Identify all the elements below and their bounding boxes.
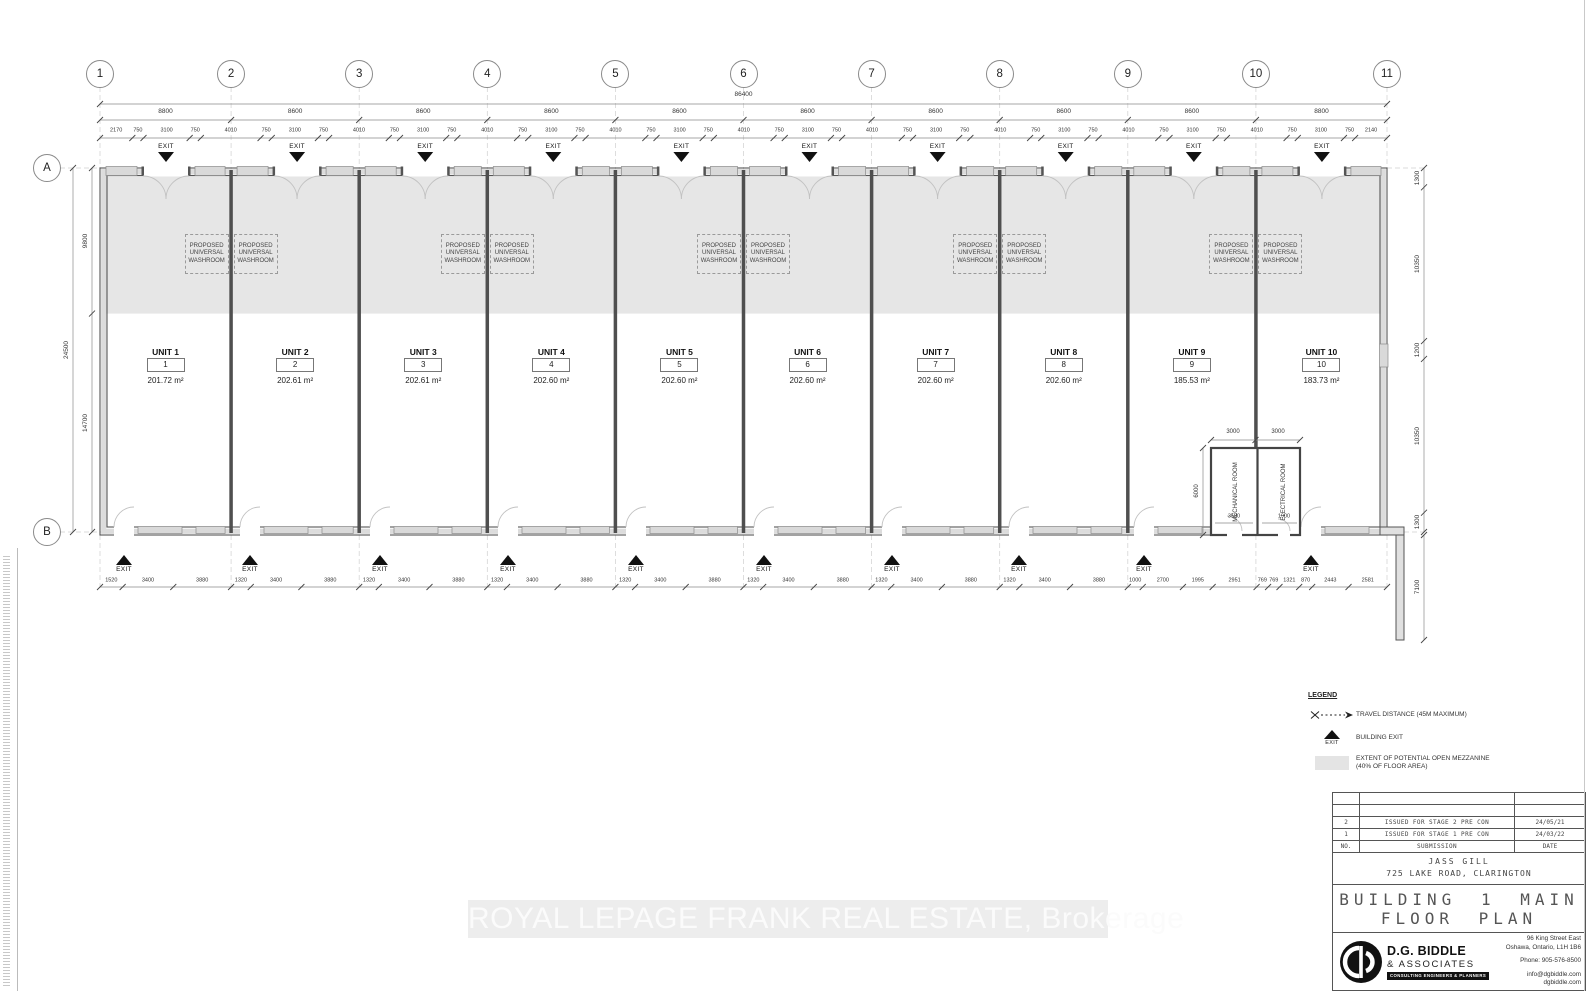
plan-geometry [188,167,191,176]
exit-arrow-icon [500,555,516,565]
sub-dim: 3100 [1186,128,1198,134]
bottom-dim: 1320 [491,578,503,584]
revision-row: 1 ISSUED FOR STAGE 1 PRE CON 24/03/22 [1333,829,1585,841]
window [138,527,182,534]
exit-arrow-icon [242,555,258,565]
right-dim: 1200 [1415,343,1422,357]
window [878,167,909,176]
window [1033,527,1077,534]
window [580,527,609,534]
proposed-washroom: PROPOSED UNIVERSAL WASHROOM [1209,234,1253,274]
sheet-margin-microtext [3,556,10,988]
window [1380,344,1389,367]
right-dim: 10350 [1415,255,1422,273]
bottom-dim: 3400 [654,578,666,584]
unit-name: UNIT 9 [1178,348,1205,357]
travel-distance-icon [1308,709,1356,721]
window [1351,167,1381,176]
sub-dim: 3100 [289,128,301,134]
unit-area: 201.72 m² [148,377,184,385]
plan-geometry [960,167,963,176]
firm-identity: D.G. BIDDLE & ASSOCIATES CONSULTING ENGI… [1339,940,1489,984]
bottom-dim: 2700 [1157,578,1169,584]
sub-dim: 750 [575,128,584,134]
plan-geometry [882,507,902,527]
span-dim: 8600 [1185,109,1199,116]
firm-web: dgbiddle.com [1489,979,1581,988]
span-dim: 8600 [672,109,686,116]
exit-label: EXIT [1058,144,1074,151]
unit-name: UNIT 6 [794,348,821,357]
legend-item-mezzanine: EXTENT OF POTENTIAL OPEN MEZZANINE (40% … [1308,755,1518,772]
window [1134,167,1165,176]
bottom-dim: 1320 [235,578,247,584]
firm-tagline: CONSULTING ENGINEERS & PLANNERS [1387,972,1489,980]
exit-label: EXIT [1303,567,1319,574]
project-info: JASS GILL 725 LAKE ROAD, CLARINGTON [1333,853,1585,885]
door-opening [1171,166,1217,177]
sub-dim: 4010 [994,128,1006,134]
legend-label: EXTENT OF POTENTIAL OPEN MEZZANINE (40% … [1356,755,1491,772]
window [964,527,994,534]
exit-label: EXIT [116,567,132,574]
plan-geometry [754,507,774,527]
bottom-dim: 1320 [1003,578,1015,584]
room-dim: 3000 [1271,429,1284,435]
revision-row: 2 ISSUED FOR STAGE 2 PRE CON 24/05/21 [1333,817,1585,829]
bottom-dim: 1320 [619,578,631,584]
grid-column-bubble: 5 [601,60,629,88]
window [839,167,866,176]
revision-header-row: NO. SUBMISSION DATE [1333,841,1585,853]
revision-table: 2 ISSUED FOR STAGE 2 PRE CON 24/05/21 1 … [1333,793,1585,853]
bottom-dim: 3400 [782,578,794,584]
sub-dim: 750 [262,128,271,134]
unit-number-box: 6 [789,358,827,372]
wall-stub [1396,535,1404,640]
legend-title: LEGEND [1308,692,1518,699]
bottom-dim: 3880 [324,578,336,584]
exit-arrow-icon [930,152,946,162]
title-block: 2 ISSUED FOR STAGE 2 PRE CON 24/05/21 1 … [1332,792,1586,991]
door-opening [498,526,518,537]
unit-area: 202.60 m² [661,377,697,385]
legend-label: BUILDING EXIT [1356,734,1403,742]
plan-geometry [1169,167,1172,176]
door-opening [626,526,646,537]
proposed-washroom: PROPOSED UNIVERSAL WASHROOM [1002,234,1046,274]
span-dim: 8600 [288,109,302,116]
right-dim: 1300 [1415,515,1422,529]
sub-dim: 750 [960,128,969,134]
bottom-dim: 3400 [526,578,538,584]
door-opening [1043,166,1089,177]
exit-label: EXIT [417,144,433,151]
grid-column-bubble: 3 [345,60,373,88]
unit-number-box: 10 [1302,358,1340,372]
window [322,527,353,534]
exit-label: EXIT [1011,567,1027,574]
plan-geometry [240,507,260,527]
sub-dim: 3100 [1315,128,1327,134]
sub-dim: 3100 [1058,128,1070,134]
plan-geometry [273,167,276,176]
door-opening [530,166,576,177]
sub-dim: 3100 [673,128,685,134]
plan-geometry [832,167,835,176]
plan-geometry [1278,531,1290,540]
plan-geometry [1134,507,1154,527]
door-opening [1299,166,1345,177]
window [326,167,353,176]
plan-geometry [1301,507,1321,527]
plan-geometry [913,167,916,176]
door-opening [240,526,260,537]
building-exit-icon: EXIT [1308,730,1356,746]
firm-address-2: Oshawa, Ontario, L1H 1B6 [1489,944,1581,953]
room-dim: 3530 [1228,514,1240,520]
bottom-dim: 3880 [708,578,720,584]
sub-dim: 750 [1288,128,1297,134]
proposed-washroom: PROPOSED UNIVERSAL WASHROOM [185,234,229,274]
sub-dim: 3100 [417,128,429,134]
plan-geometry [114,507,134,527]
span-dim: 8600 [928,109,942,116]
exit-label: EXIT [1314,144,1330,151]
sheet-right-border [1584,0,1585,991]
exit-label: EXIT [545,144,561,151]
unit-area: 202.60 m² [533,377,569,385]
proposed-washroom: PROPOSED UNIVERSAL WASHROOM [953,234,997,274]
unit-number-box: 5 [660,358,698,372]
unit-name: UNIT 4 [538,348,565,357]
revision-row-empty [1333,805,1585,817]
window [750,167,781,176]
room-dim: 1900 [1278,514,1290,520]
bottom-dim: 3400 [142,578,154,584]
bottom-dim: 769 [1269,578,1278,584]
legend-item-building-exit: EXIT BUILDING EXIT [1308,730,1518,746]
exit-label: EXIT [1136,567,1152,574]
exit-arrow-icon [756,555,772,565]
sub-dim: 750 [903,128,912,134]
unit-number-box: 4 [532,358,570,372]
dg-biddle-logo-icon [1339,940,1383,984]
exit-label: EXIT [756,567,772,574]
grid-column-bubble: 4 [473,60,501,88]
window [1091,527,1122,534]
window [1095,167,1122,176]
bottom-dim: 870 [1301,578,1310,584]
bottom-dim: 3880 [1093,578,1105,584]
plan-geometry [626,507,646,527]
sub-dim: 4010 [481,128,493,134]
plan-geometry [1227,531,1242,540]
left-dim: 24500 [64,341,71,359]
door-opening [754,526,774,537]
right-dim: 10350 [1415,427,1422,445]
bottom-dim: 3880 [196,578,208,584]
sub-dim: 4010 [738,128,750,134]
bottom-dim: 1321 [1283,578,1295,584]
legend-item-travel-distance: TRAVEL DISTANCE (45M MAXIMUM) [1308,709,1518,721]
door-opening [114,526,134,537]
window [1158,527,1202,534]
plan-geometry [1041,167,1044,176]
exit-arrow-icon [372,555,388,565]
plan-geometry [1009,507,1029,527]
watermark: ROYAL LEPAGE FRANK REAL ESTATE, Brokerag… [468,900,1108,938]
firm-name: D.G. BIDDLE [1387,944,1489,958]
bottom-dim: 2443 [1324,578,1336,584]
project-address: 725 LAKE ROAD, CLARINGTON [1333,869,1585,878]
door-opening [658,166,704,177]
unit-name: UNIT 10 [1306,348,1338,357]
unit-number-box: 8 [1045,358,1083,372]
exit-label: EXIT [674,144,690,151]
span-dim: 8600 [1057,109,1071,116]
exit-arrow-icon [1186,152,1202,162]
exit-label: EXIT [289,144,305,151]
bottom-dim: 1995 [1192,578,1204,584]
left-dim: 9800 [83,234,90,248]
grid-row-bubble: A [33,154,61,182]
door-opening [402,166,448,177]
bottom-dim: 1320 [363,578,375,584]
exit-label: EXIT [802,144,818,151]
unit-name: UNIT 5 [666,348,693,357]
window [195,167,225,176]
exit-label: EXIT [1186,144,1202,151]
sheet-left-border [17,548,18,991]
bottom-dim: 3880 [965,578,977,584]
window [522,527,566,534]
door-opening [143,166,189,177]
sub-dim: 2170 [110,128,122,134]
firm-email: info@dgbiddle.com [1489,971,1581,980]
window [264,527,308,534]
window [650,527,694,534]
sub-dim: 4010 [1122,128,1134,134]
sub-dim: 750 [518,128,527,134]
plan-geometry [142,167,145,176]
door-opening [1009,526,1029,537]
window [1325,527,1369,534]
unit-name: UNIT 2 [282,348,309,357]
revision-row-empty [1333,793,1585,805]
exit-arrow-icon [417,152,433,162]
window [196,527,225,534]
door-opening [787,166,833,177]
exit-arrow-icon [802,152,818,162]
sub-dim: 750 [1088,128,1097,134]
drawing-sheet: EXITEXITEXITEXITEXITEXITEXITEXITEXITEXIT… [0,0,1592,991]
grid-column-bubble: 1 [86,60,114,88]
firm-contact: 96 King Street East Oshawa, Ontario, L1H… [1489,935,1581,988]
unit-number-box: 3 [404,358,442,372]
unit-number-box: 2 [276,358,314,372]
exit-arrow-icon [289,152,305,162]
window [1223,167,1250,176]
bottom-dim: 1520 [105,578,117,584]
unit-area: 202.60 m² [918,377,954,385]
legend-label: TRAVEL DISTANCE (45M MAXIMUM) [1356,711,1467,719]
sub-dim: 4010 [353,128,365,134]
firm-phone: Phone: 905-576-8500 [1489,957,1581,966]
bottom-dim: 3400 [1039,578,1051,584]
span-dim: 8800 [1314,109,1328,116]
bottom-dim: 3400 [910,578,922,584]
right-dim: 7100 [1415,580,1422,594]
exit-label: EXIT [884,567,900,574]
grid-column-bubble: 9 [1114,60,1142,88]
window [621,167,652,176]
sub-dim: 750 [133,128,142,134]
room-dim: 3000 [1226,429,1239,435]
sub-dim: 750 [447,128,456,134]
exit-arrow-icon [628,555,644,565]
exit-label: EXIT [500,567,516,574]
sub-dim: 4010 [609,128,621,134]
proposed-washroom: PROPOSED UNIVERSAL WASHROOM [746,234,790,274]
exit-arrow-icon [1011,555,1027,565]
exit-label: EXIT [372,567,388,574]
firm-address-1: 96 King Street East [1489,935,1581,944]
unit-area: 185.53 m² [1174,377,1210,385]
plan-geometry [1344,167,1347,176]
exit-arrow-icon [1314,152,1330,162]
door-opening [915,166,961,177]
sub-dim: 750 [704,128,713,134]
door-opening [882,526,902,537]
window [710,167,737,176]
unit-number-box: 1 [147,358,185,372]
bottom-dim: 3400 [398,578,410,584]
sub-dim: 3100 [545,128,557,134]
unit-name: UNIT 7 [922,348,949,357]
unit-area: 202.61 m² [405,377,441,385]
exit-label: EXIT [242,567,258,574]
bottom-dim: 1320 [875,578,887,584]
bottom-dim: 2951 [1228,578,1240,584]
unit-number-box: 9 [1173,358,1211,372]
plan-geometry [657,167,660,176]
window [237,167,268,176]
door-opening [1134,526,1154,537]
sub-dim: 750 [832,128,841,134]
window [906,527,950,534]
unit-name: UNIT 3 [410,348,437,357]
window [1006,167,1037,176]
sub-dim: 750 [1159,128,1168,134]
exit-arrow-icon [1058,152,1074,162]
proposed-washroom: PROPOSED UNIVERSAL WASHROOM [1258,234,1302,274]
plan-geometry [785,167,788,176]
grid-column-bubble: 11 [1373,60,1401,88]
span-dim: 8600 [800,109,814,116]
span-dim: 8600 [416,109,430,116]
exit-arrow-icon [158,152,174,162]
span-dim: 8600 [544,109,558,116]
overall-dim: 86400 [734,92,752,99]
sub-dim: 750 [390,128,399,134]
sub-dim: 750 [319,128,328,134]
plan-geometry [319,167,322,176]
sub-dim: 4010 [1251,128,1263,134]
window [454,167,481,176]
window [836,527,866,534]
bottom-dim: 3880 [580,578,592,584]
bottom-dim: 3400 [270,578,282,584]
exit-arrow-icon [545,152,561,162]
proposed-washroom: PROPOSED UNIVERSAL WASHROOM [697,234,741,274]
plan-geometry [1088,167,1091,176]
sub-dim: 750 [1217,128,1226,134]
unit-area: 183.73 m² [1303,377,1339,385]
bottom-dim: 1320 [747,578,759,584]
legend: LEGEND TRAVEL DISTANCE (45M MAXIMUM) EXI… [1308,692,1518,781]
door-opening [1301,526,1321,537]
door-opening [370,526,390,537]
exit-label: EXIT [158,144,174,151]
sub-dim: 3100 [930,128,942,134]
proposed-washroom: PROPOSED UNIVERSAL WASHROOM [234,234,278,274]
sub-dim: 750 [1031,128,1040,134]
unit-area: 202.61 m² [277,377,313,385]
plan-geometry [529,167,532,176]
sub-dim: 750 [775,128,784,134]
sub-dim: 750 [1345,128,1354,134]
firm-sub-name: & ASSOCIATES [1387,959,1489,970]
plan-geometry [370,507,390,527]
window [708,527,738,534]
unit-area: 202.60 m² [790,377,826,385]
sub-dim: 750 [646,128,655,134]
bottom-dim: 1000 [1129,578,1141,584]
proposed-washroom: PROPOSED UNIVERSAL WASHROOM [490,234,534,274]
grid-column-bubble: 7 [858,60,886,88]
door-opening [274,166,320,177]
unit-number-box: 7 [917,358,955,372]
client-name: JASS GILL [1333,857,1585,866]
grid-row-bubble: B [33,518,61,546]
plan-geometry [703,167,706,176]
exit-arrow-icon [1303,555,1319,565]
grid-column-bubble: 8 [986,60,1014,88]
exit-arrow-icon [673,152,689,162]
unit-area: 202.60 m² [1046,377,1082,385]
proposed-washroom: PROPOSED UNIVERSAL WASHROOM [441,234,485,274]
sub-dim: 4010 [866,128,878,134]
exit-label: EXIT [628,567,644,574]
plan-geometry [1216,167,1219,176]
window [967,167,994,176]
right-dim: 1300 [1415,170,1422,184]
plan-geometry [401,167,404,176]
plan-geometry [498,507,518,527]
exit-arrow-icon [884,555,900,565]
window [365,167,396,176]
exit-label: EXIT [930,144,946,151]
bottom-dim: 3880 [837,578,849,584]
window [493,167,524,176]
room-dim: 6000 [1194,484,1200,497]
plan-geometry [1297,167,1300,176]
window [394,527,438,534]
left-dim: 14700 [83,414,90,432]
bottom-dim: 3880 [452,578,464,584]
sub-dim: 2140 [1365,128,1377,134]
